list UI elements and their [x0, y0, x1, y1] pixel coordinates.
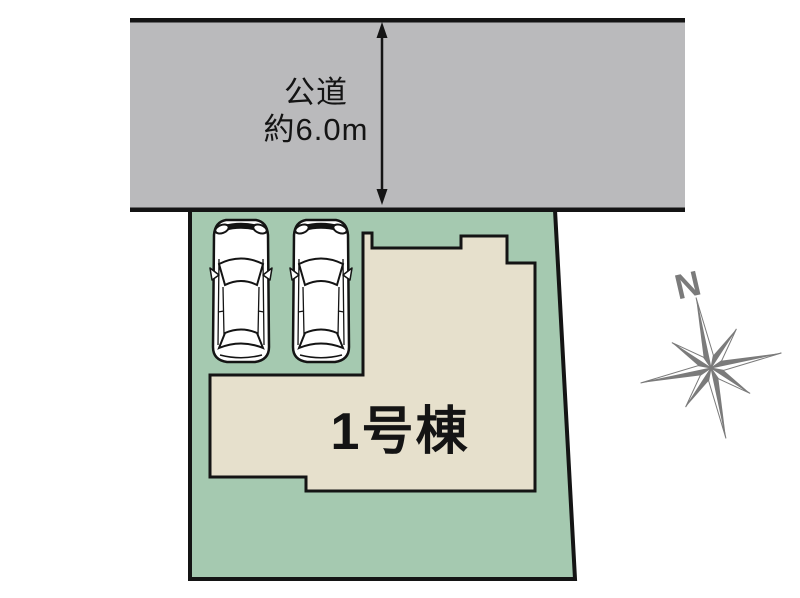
car-icon: [290, 220, 352, 362]
road-label-line2: 約6.0m: [230, 111, 402, 148]
compass-rose-icon: [626, 283, 797, 454]
road-label-line1: 公道: [230, 74, 402, 111]
road-area: [130, 18, 685, 212]
car-icon: [210, 220, 272, 362]
building-name-label: 1号棟: [290, 404, 510, 460]
site-plan-diagram: 公道 約6.0m 1号棟 N: [0, 0, 800, 598]
road-width-label: 公道 約6.0m: [230, 74, 402, 148]
